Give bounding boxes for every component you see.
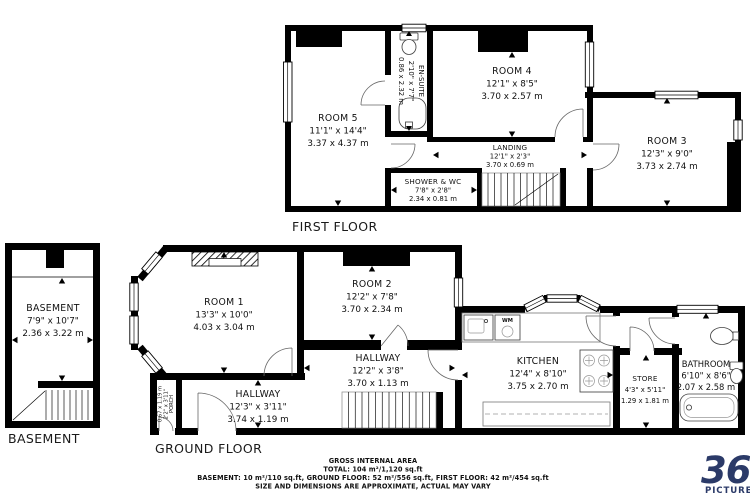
washing-machine-label: WM bbox=[502, 318, 513, 324]
door-arc bbox=[630, 327, 654, 351]
bathroom-metric: 2.07 x 2.58 m bbox=[677, 382, 735, 392]
hallway-rear-name: HALLWAY bbox=[356, 353, 401, 364]
porch-label: 0.67 x 1.19 m 2'2" x 3'11" PORCH bbox=[158, 386, 176, 422]
room3-name: ROOM 3 bbox=[647, 136, 687, 147]
chimney-breast bbox=[478, 31, 528, 52]
room1-name: ROOM 1 bbox=[204, 297, 244, 308]
basement-title: BASEMENT bbox=[8, 431, 80, 446]
door-arc bbox=[586, 316, 616, 346]
toilet-fixture bbox=[402, 40, 416, 55]
room3-metric: 3.73 x 2.74 m bbox=[636, 162, 697, 172]
door-arc bbox=[593, 144, 619, 170]
room1-metric: 4.03 x 3.04 m bbox=[193, 323, 254, 333]
basin-fixture bbox=[711, 328, 734, 345]
landing-imperial: 12'1" x 2'3" bbox=[490, 153, 531, 161]
hallway-rear-metric: 3.70 x 1.13 m bbox=[347, 379, 408, 389]
door-arc bbox=[264, 348, 292, 376]
kitchen-name: KITCHEN bbox=[517, 356, 559, 367]
room3-imperial: 12'3" x 9'0" bbox=[641, 150, 693, 160]
ensuite-imperial: 2'10" x 7'7" bbox=[407, 61, 415, 102]
room2-name: ROOM 2 bbox=[352, 279, 392, 290]
basement-name: BASEMENT bbox=[26, 303, 79, 314]
first-floor-stairs bbox=[482, 173, 560, 206]
ground-floor-stairs bbox=[342, 392, 436, 428]
shower-wc-imperial: 7'8" x 2'8" bbox=[415, 187, 451, 195]
first-floor-title: FIRST FLOOR bbox=[292, 219, 378, 234]
room2-metric: 3.70 x 2.34 m bbox=[341, 305, 402, 315]
chimney-breast bbox=[343, 252, 410, 266]
basement-imperial: 7'9" x 10'7" bbox=[27, 317, 79, 327]
room2-imperial: 12'2" x 7'8" bbox=[346, 293, 398, 303]
room4-name: ROOM 4 bbox=[492, 66, 532, 77]
hallway-rear-imperial: 12'2" x 3'8" bbox=[352, 367, 404, 377]
ground-floor-plan: WM bbox=[130, 245, 745, 456]
room5-metric: 3.37 x 4.37 m bbox=[307, 139, 368, 149]
ground-floor-labels: ROOM 1 13'3" x 10'0" 4.03 x 3.04 m ROOM … bbox=[158, 279, 736, 425]
basement-plan: BASEMENT 7'9" x 10'7" 2.36 x 3.22 m BASE… bbox=[5, 243, 100, 446]
door-arc bbox=[361, 81, 385, 105]
hallway-front-imperial: 12'3" x 3'11" bbox=[229, 403, 286, 413]
summary-total: TOTAL: 104 m²/1,120 sq.ft bbox=[323, 466, 422, 474]
chimney-breast bbox=[46, 250, 64, 268]
shower-wc-name: SHOWER & WC bbox=[405, 177, 462, 186]
summary-disclaimer: SIZE AND DIMENSIONS ARE APPROXIMATE, ACT… bbox=[255, 483, 491, 491]
room1-imperial: 13'3" x 10'0" bbox=[195, 311, 252, 321]
360-picture-logo: 360 PICTURE bbox=[701, 449, 750, 496]
store-metric: 1.29 x 1.81 m bbox=[621, 397, 669, 405]
bathroom-name: BATHROOM bbox=[682, 359, 730, 369]
door-arc bbox=[428, 350, 458, 380]
ensuite-name: EN-SUITE bbox=[417, 65, 425, 97]
summary-breakdown: BASEMENT: 10 m²/110 sq.ft, GROUND FLOOR:… bbox=[197, 474, 549, 482]
tap-icon bbox=[484, 319, 487, 322]
hallway-front-name: HALLWAY bbox=[236, 389, 281, 400]
tap-icon bbox=[733, 332, 739, 340]
room4-metric: 3.70 x 2.57 m bbox=[481, 92, 542, 102]
landing-metric: 3.70 x 0.69 m bbox=[486, 161, 534, 169]
floorplan-page: ROOM 5 11'1" x 14'4" 3.37 x 4.37 m ROOM … bbox=[0, 0, 750, 500]
fireplace-opening bbox=[209, 259, 241, 267]
ground-floor-walls bbox=[131, 245, 745, 435]
summary-title: GROSS INTERNAL AREA bbox=[329, 457, 418, 465]
porch-name: PORCH bbox=[169, 395, 175, 413]
ensuite-metric: 0.86 x 2.32 m bbox=[397, 57, 405, 105]
ground-floor-title: GROUND FLOOR bbox=[155, 441, 262, 456]
room4-imperial: 12'1" x 8'5" bbox=[486, 80, 538, 90]
door-arc bbox=[649, 318, 675, 344]
door-arc bbox=[555, 109, 583, 137]
chimney-breast bbox=[296, 31, 342, 47]
kitchen-imperial: 12'4" x 8'10" bbox=[509, 370, 566, 380]
ensuite-label: EN-SUITE 2'10" x 7'7" 0.86 x 2.32 m bbox=[397, 57, 425, 105]
basement-metric: 2.36 x 3.22 m bbox=[22, 329, 83, 339]
room5-name: ROOM 5 bbox=[318, 113, 358, 124]
landing-name: LANDING bbox=[493, 143, 527, 152]
door-arc bbox=[381, 325, 408, 346]
kitchen-metric: 3.75 x 2.70 m bbox=[507, 382, 568, 392]
basement-stairs bbox=[13, 390, 88, 420]
area-summary: GROSS INTERNAL AREA TOTAL: 104 m²/1,120 … bbox=[197, 457, 549, 491]
basement-labels: BASEMENT 7'9" x 10'7" 2.36 x 3.22 m bbox=[22, 303, 83, 339]
door-arc bbox=[391, 144, 415, 168]
shower-wc-metric: 2.34 x 0.81 m bbox=[409, 195, 457, 203]
store-imperial: 4'3" x 5'11" bbox=[625, 386, 666, 394]
room5-imperial: 11'1" x 14'4" bbox=[309, 127, 366, 137]
first-floor-plan: ROOM 5 11'1" x 14'4" 3.37 x 4.37 m ROOM … bbox=[284, 24, 743, 234]
store-name: STORE bbox=[632, 374, 657, 383]
bathroom-imperial: 6'10" x 8'6" bbox=[681, 371, 730, 381]
logo-word: PICTURE bbox=[705, 486, 750, 496]
tap-icon bbox=[686, 405, 691, 410]
hallway-front-metric: 3.74 x 1.19 m bbox=[227, 415, 288, 425]
floorplan-drawing: ROOM 5 11'1" x 14'4" 3.37 x 4.37 m ROOM … bbox=[0, 0, 750, 500]
